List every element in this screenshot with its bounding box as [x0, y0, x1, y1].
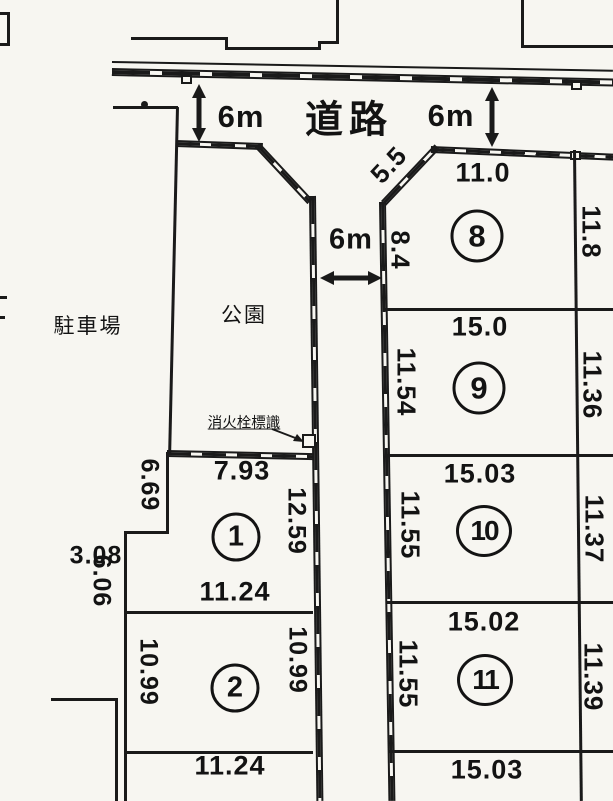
plot-number-10-text: 10	[470, 515, 497, 547]
road-width-arrow-right	[483, 87, 501, 147]
road-width-top-left: 6m	[218, 99, 265, 135]
fire-hydrant-label: 消火栓標識	[208, 412, 281, 433]
park-corner-boundary	[255, 143, 313, 204]
plot-number-2: 2	[211, 664, 260, 713]
boundary-marker	[181, 75, 192, 84]
plot9-10-boundary	[386, 454, 613, 457]
plot1-west-boundary	[166, 452, 169, 534]
parking-park-boundary	[168, 107, 178, 453]
plot-number-10: 10	[456, 505, 512, 557]
edge-fragment	[0, 296, 7, 299]
building-outline	[131, 37, 227, 40]
dim-p9-top: 15.0	[452, 312, 509, 343]
dim-west-side: 6.06	[87, 555, 116, 608]
plot-number-11-text: 11	[472, 664, 498, 696]
road-width-top-right: 6m	[428, 98, 475, 134]
dim-p10-right: 11.37	[579, 495, 610, 564]
dim-p1-right: 12.59	[282, 487, 311, 555]
dim-p8-right: 11.8	[576, 205, 607, 258]
parking-boundary	[51, 698, 117, 701]
dim-p2-bottom: 11.24	[194, 751, 265, 782]
plot-number-9: 9	[453, 362, 506, 415]
boundary-marker	[571, 81, 582, 90]
dim-p2-right: 10.99	[283, 626, 312, 694]
dim-p10-left: 11.55	[395, 491, 426, 560]
building-outline	[521, 0, 524, 47]
dim-p1-bottom: 11.24	[199, 577, 270, 608]
parking-boundary	[115, 698, 118, 801]
plots-west-road-boundary	[379, 202, 395, 801]
edge-fragment	[0, 43, 9, 46]
plot8-9-boundary	[385, 308, 613, 311]
building-outline	[336, 0, 339, 43]
plot11-south-boundary	[388, 750, 613, 753]
edge-fragment	[7, 12, 10, 46]
park-road-boundary	[176, 140, 263, 150]
edge-fragment	[0, 316, 5, 319]
road-width-center: 6m	[329, 224, 373, 257]
survey-point	[141, 101, 148, 108]
dim-p1-left: 6.69	[135, 459, 164, 512]
dim-p11-right: 11.39	[578, 643, 609, 712]
plot-number-8: 8	[451, 210, 504, 263]
dim-p10-top: 15.03	[444, 459, 517, 490]
plot-number-1: 1	[212, 513, 261, 562]
dim-p9-right: 11.36	[577, 351, 608, 420]
parking-label: 駐車場	[54, 310, 123, 340]
plot-number-1-text: 1	[228, 521, 244, 554]
plot1-2-boundary	[125, 611, 313, 614]
land-plot-map: 道路 駐車場 公園 消火栓標識 6m 6m 6m 5.5 11.0 8.4 11…	[0, 0, 613, 801]
park-label: 公園	[221, 299, 267, 329]
building-outline	[225, 47, 320, 50]
dim-p2-left: 10.99	[134, 638, 163, 706]
building-outline	[521, 45, 613, 48]
road-width-arrow-center	[320, 269, 382, 287]
road-label: 道路	[305, 89, 393, 144]
plot10-11-boundary	[387, 601, 613, 604]
dim-p11-top: 15.02	[448, 607, 521, 638]
dim-p1-top: 7.93	[214, 456, 271, 487]
plot-number-11: 11	[457, 654, 513, 706]
plot-number-8-text: 8	[468, 218, 485, 254]
dim-p11-left: 11.55	[393, 640, 424, 709]
plot1-step-boundary	[125, 531, 168, 534]
west-boundary	[124, 531, 127, 801]
plot-number-9-text: 9	[470, 370, 487, 406]
dim-p11-bottom: 15.03	[451, 755, 524, 786]
dim-p9-left: 11.54	[391, 348, 422, 417]
dim-p8-left: 8.4	[385, 230, 416, 269]
dim-p8-top: 11.0	[455, 158, 510, 189]
road-width-arrow-left	[190, 84, 208, 142]
plot-number-2-text: 2	[227, 672, 243, 705]
